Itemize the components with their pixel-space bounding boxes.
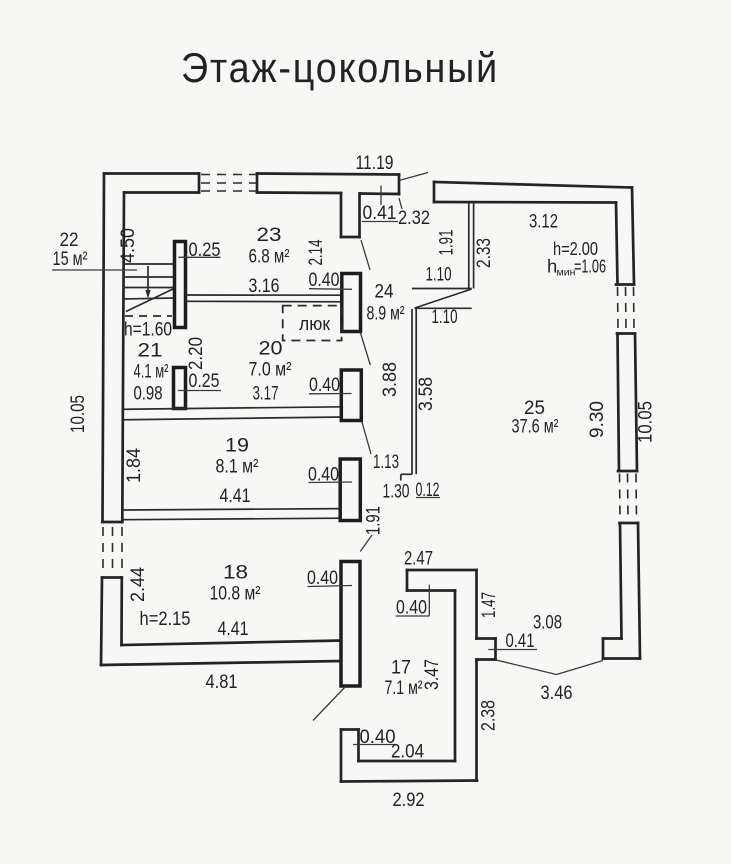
svg-text:Этаж-цокольный: Этаж-цокольный [181,44,499,91]
svg-text:2.33: 2.33 [474,238,495,268]
svg-text:19: 19 [225,435,249,457]
svg-text:1.91: 1.91 [364,506,385,535]
svg-text:0.40: 0.40 [307,567,338,589]
svg-text:4.41: 4.41 [220,485,251,507]
svg-text:1.47: 1.47 [479,592,500,618]
svg-text:1.84: 1.84 [124,448,145,483]
svg-text:0.25: 0.25 [189,370,220,392]
svg-text:24: 24 [375,281,394,303]
svg-text:0.41: 0.41 [363,202,397,224]
svg-text:1.91: 1.91 [437,230,458,256]
svg-text:h=1.60: h=1.60 [124,319,172,341]
svg-text:2.20: 2.20 [186,337,207,370]
svg-text:8.1 м²: 8.1 м² [216,456,259,478]
svg-text:11.19: 11.19 [356,152,394,174]
svg-text:2.44: 2.44 [128,567,149,602]
svg-text:1.10: 1.10 [426,264,452,286]
svg-text:4.81: 4.81 [206,671,238,693]
svg-text:10.8 м²: 10.8 м² [210,583,261,605]
svg-text:7.1 м²: 7.1 м² [385,677,423,699]
svg-text:3.46: 3.46 [541,682,573,704]
svg-text:1.13: 1.13 [373,451,399,473]
svg-text:2.32: 2.32 [398,207,430,229]
svg-text:6.8 м²: 6.8 м² [249,246,290,268]
svg-text:3.16: 3.16 [249,275,280,297]
svg-text:0.40: 0.40 [308,464,339,486]
svg-text:15 м²: 15 м² [53,248,88,270]
svg-text:0.40: 0.40 [396,597,427,619]
svg-text:1.30: 1.30 [383,481,410,503]
svg-text:18: 18 [223,562,248,584]
svg-text:3.58: 3.58 [416,377,437,411]
svg-text:20: 20 [259,338,283,360]
svg-text:8.9 м²: 8.9 м² [367,303,405,325]
svg-text:1.10: 1.10 [432,306,458,328]
svg-text:4.50: 4.50 [118,228,139,263]
svg-text:10.05: 10.05 [636,401,657,443]
svg-text:21: 21 [138,340,163,362]
svg-text:0.40: 0.40 [309,269,340,291]
svg-text:0.40: 0.40 [309,374,340,396]
svg-text:3.47: 3.47 [422,659,443,690]
svg-text:0.12: 0.12 [416,479,440,501]
svg-text:9.30: 9.30 [587,401,608,438]
svg-text:мин: мин [557,267,576,279]
svg-text:3.88: 3.88 [380,362,401,397]
svg-text:=1.06: =1.06 [574,256,606,277]
svg-text:37.6 м²: 37.6 м² [512,416,559,438]
svg-text:2.92: 2.92 [393,789,425,811]
svg-text:0.98: 0.98 [134,383,163,405]
svg-text:0.25: 0.25 [189,239,221,261]
svg-text:2.47: 2.47 [404,548,433,570]
svg-text:7.0 м²: 7.0 м² [249,359,292,381]
svg-text:4.41: 4.41 [218,618,249,640]
svg-text:h=2.15: h=2.15 [140,608,191,630]
svg-text:4.1 м²: 4.1 м² [134,361,169,383]
svg-text:3.08: 3.08 [533,612,562,634]
svg-text:0.41: 0.41 [506,630,535,652]
svg-text:люк: люк [299,314,330,334]
svg-text:3.17: 3.17 [253,383,279,405]
svg-text:2.14: 2.14 [306,239,327,265]
svg-text:2.38: 2.38 [479,700,500,731]
svg-text:17: 17 [391,657,411,679]
svg-text:23: 23 [257,224,282,246]
svg-text:2.04: 2.04 [391,741,424,763]
svg-text:3.12: 3.12 [529,211,558,233]
svg-text:10.05: 10.05 [68,395,89,433]
